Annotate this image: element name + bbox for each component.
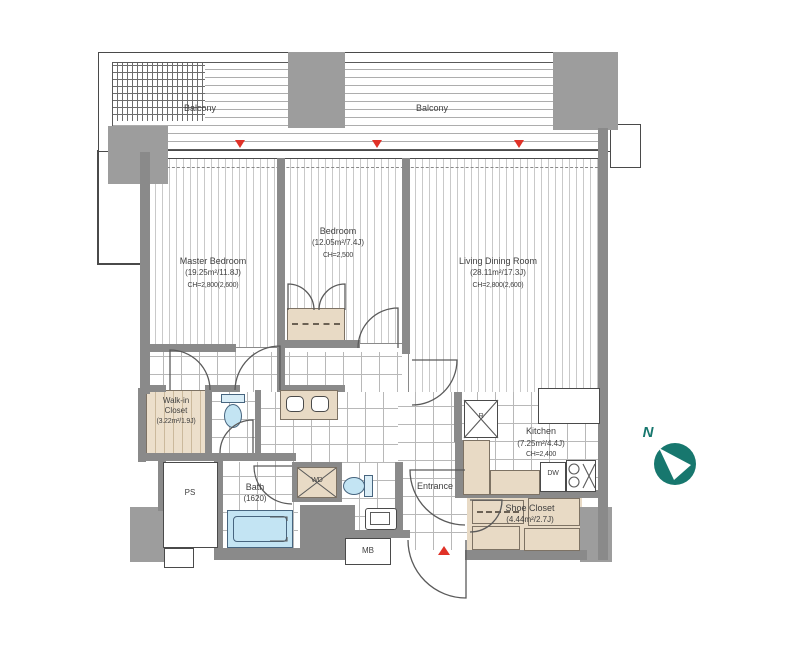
compass-north-label: N [643, 424, 654, 441]
bedroom-ceiling: CH=2,500 [323, 252, 353, 260]
door-bedroom [358, 308, 398, 348]
balcony-left-label: Balcony [184, 103, 216, 113]
kitchen-ceiling: CH=2,400 [526, 451, 556, 459]
bedroom-name: Bedroom [320, 226, 357, 236]
door-living-dining [412, 360, 457, 405]
door-bedroom-closet-left [288, 284, 314, 310]
stove-burner-1 [569, 464, 579, 474]
shoe-closet-area: (4.44m²/2.7J) [506, 515, 554, 524]
kitchen-area: (7.25m²/4.4J) [517, 439, 565, 448]
door-front [408, 540, 466, 598]
window-marker-2 [372, 140, 382, 148]
master-bedroom-ceiling: CH=2,800(2,600) [188, 282, 239, 290]
door-shoe-closet [470, 500, 502, 532]
door-walk-in-closet [170, 350, 210, 390]
bath-name: Bath [246, 482, 265, 492]
living-dining-ceiling: CH=2,800(2,600) [473, 282, 524, 290]
stove-burner-2 [569, 477, 579, 487]
stove-cross [583, 464, 595, 488]
window-marker-1 [235, 140, 245, 148]
door-toilet [220, 420, 253, 453]
bath-size: (1620) [243, 494, 266, 503]
door-master-bedroom [235, 346, 280, 390]
walk-in-closet-area: (3.22m²/1.9J) [156, 418, 195, 426]
window-marker-3 [514, 140, 524, 148]
refrigerator-label: R [479, 413, 484, 421]
door-swing-overlay [0, 0, 791, 659]
walk-in-closet-name-2: Closet [165, 406, 188, 415]
master-bedroom-name: Master Bedroom [180, 256, 247, 266]
living-dining-name: Living Dining Room [459, 256, 537, 266]
door-bedroom-closet-right [319, 284, 345, 310]
compass-icon [654, 443, 696, 485]
floor-plan: Balcony Balcony [0, 0, 791, 659]
master-bedroom-area: (19.25m²/11.8J) [185, 268, 241, 277]
entrance-marker [438, 546, 450, 555]
pipe-space-label: PS [185, 488, 196, 497]
balcony-right-label: Balcony [416, 103, 448, 113]
living-dining-area: (28.11m²/17.3J) [470, 268, 526, 277]
dishwasher-label: DW [547, 470, 558, 478]
door-entrance-hall [410, 470, 465, 525]
walk-in-closet-name-1: Walk-in [163, 396, 189, 405]
meter-box-label: MB [362, 546, 374, 555]
shoe-closet-name: Shoe Closet [505, 503, 554, 513]
washer-dryer-label: WD [311, 477, 322, 485]
bathtub-grab-bar-bottom [270, 537, 287, 541]
bedroom-area: (12.05m²/7.4J) [312, 238, 364, 247]
kitchen-name: Kitchen [526, 426, 556, 436]
entrance-name: Entrance [417, 481, 453, 491]
bathtub-grab-bar-top [270, 517, 287, 521]
